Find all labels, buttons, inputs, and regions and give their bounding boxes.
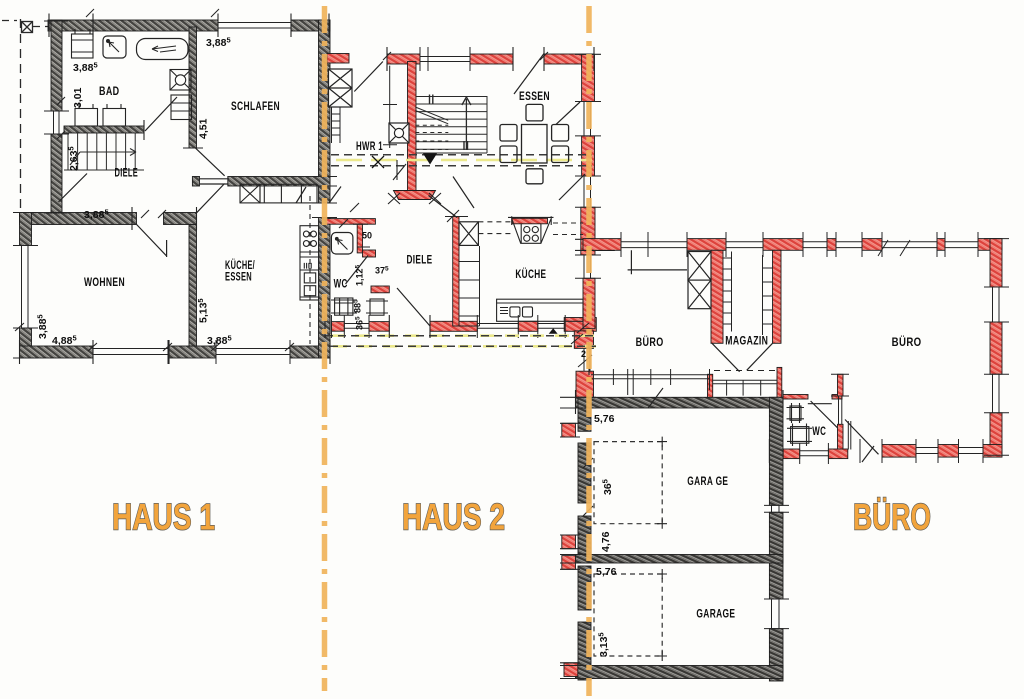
svg-text:WC: WC xyxy=(334,277,348,291)
svg-text:BÜRO: BÜRO xyxy=(636,334,664,349)
svg-text:WOHNEN: WOHNEN xyxy=(84,275,125,289)
svg-text:GARA GE: GARA GE xyxy=(687,474,728,488)
svg-text:MAGAZIN: MAGAZIN xyxy=(725,334,768,348)
svg-text:SCHLAFEN: SCHLAFEN xyxy=(231,99,280,113)
svg-text:KÜCHE: KÜCHE xyxy=(515,266,546,281)
svg-text:4,76: 4,76 xyxy=(600,531,612,552)
svg-text:4,51: 4,51 xyxy=(198,118,210,139)
svg-text:DIELE: DIELE xyxy=(407,253,433,267)
svg-text:50: 50 xyxy=(362,231,372,241)
svg-text:BÜRO: BÜRO xyxy=(892,334,922,349)
svg-text:DIELE: DIELE xyxy=(115,166,139,180)
svg-text:HWR 1: HWR 1 xyxy=(356,139,383,153)
svg-text:ESSEN: ESSEN xyxy=(225,270,252,284)
svg-text:HAUS 2: HAUS 2 xyxy=(402,497,505,538)
svg-text:BAD: BAD xyxy=(99,84,120,98)
svg-text:5,76: 5,76 xyxy=(594,413,615,425)
svg-text:2: 2 xyxy=(581,349,586,359)
svg-text:ESSEN: ESSEN xyxy=(519,89,550,103)
svg-text:GARAGE: GARAGE xyxy=(696,607,735,621)
svg-text:WC: WC xyxy=(812,424,826,438)
svg-text:3,01: 3,01 xyxy=(72,87,84,108)
svg-text:5,76: 5,76 xyxy=(596,566,617,578)
svg-text:BÜRO: BÜRO xyxy=(853,497,931,538)
svg-text:HAUS 1: HAUS 1 xyxy=(112,497,215,538)
